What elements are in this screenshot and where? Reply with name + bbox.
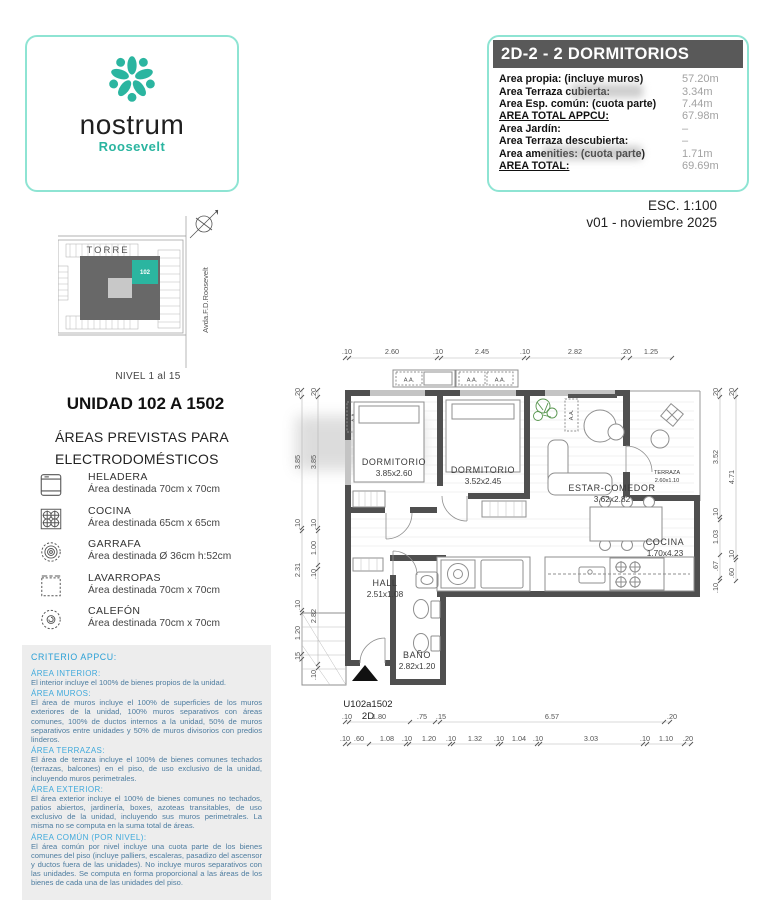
svg-text:3.62x2.82: 3.62x2.82 <box>594 494 631 504</box>
row-value: – <box>682 135 742 147</box>
logo-wordmark: nostrum <box>27 112 237 138</box>
area-summary-box: 2D-2 - 2 DORMITORIOS Area propia: (inclu… <box>487 35 749 192</box>
svg-text:TERRAZA: TERRAZA <box>654 470 680 476</box>
row-value: 7.44m <box>682 98 742 110</box>
table-row: Area Jardín:– <box>499 123 742 135</box>
svg-text:1.32: 1.32 <box>468 734 482 743</box>
svg-text:DORMITORIO: DORMITORIO <box>451 465 515 475</box>
row-label: AREA TOTAL: <box>499 160 682 172</box>
svg-text:.20: .20 <box>683 734 693 743</box>
unit-title: UNIDAD 102 A 1502 <box>28 394 263 414</box>
svg-text:.10: .10 <box>433 347 443 356</box>
svg-text:.15: .15 <box>293 652 302 662</box>
svg-text:.20: .20 <box>711 388 720 398</box>
svg-text:.10: .10 <box>293 600 302 610</box>
unit-number-label: 102 <box>140 270 151 276</box>
svg-text:1.08: 1.08 <box>380 734 394 743</box>
plan-sheet: nostrum Roosevelt 2D-2 - 2 DORMITORIOS A… <box>0 0 766 900</box>
svg-text:DORMITORIO: DORMITORIO <box>362 457 426 467</box>
svg-text:.10: .10 <box>711 583 720 593</box>
row-value: 69.69m <box>682 160 742 172</box>
bathroom-fixtures <box>414 572 441 653</box>
row-label: AREA TOTAL APPCU: <box>499 110 682 122</box>
svg-text:3.03: 3.03 <box>584 734 598 743</box>
north-arrow-icon <box>190 210 218 238</box>
washer-icon <box>38 573 64 604</box>
svg-text:1.10: 1.10 <box>659 734 673 743</box>
svg-text:.20: .20 <box>727 388 736 398</box>
svg-text:2.60x1.10: 2.60x1.10 <box>655 478 680 484</box>
row-value: 1.71m <box>682 148 742 160</box>
svg-text:.75: .75 <box>417 712 427 721</box>
svg-text:.67: .67 <box>711 561 720 571</box>
site-key-plan: Avda.F.D.Roosevelt 102 TORRE <box>58 208 238 381</box>
svg-text:1.70x4.23: 1.70x4.23 <box>647 548 684 558</box>
svg-text:.20: .20 <box>667 712 677 721</box>
svg-text:3.85: 3.85 <box>293 455 302 469</box>
svg-text:.10: .10 <box>309 519 318 529</box>
svg-text:A.A.: A.A. <box>569 409 575 420</box>
tv <box>568 394 617 398</box>
row-value: 67.98m <box>682 110 742 122</box>
svg-text:.10: .10 <box>533 734 543 743</box>
svg-text:A.A.: A.A. <box>495 378 506 384</box>
bed <box>446 400 520 472</box>
row-value: 57.20m <box>682 73 742 85</box>
svg-text:.10: .10 <box>309 670 318 680</box>
svg-text:A.A.: A.A. <box>404 378 415 384</box>
row-value: 3.34m <box>682 86 742 98</box>
svg-text:A.A.: A.A. <box>467 378 478 384</box>
svg-text:.10: .10 <box>640 734 650 743</box>
svg-text:1.20: 1.20 <box>293 626 302 640</box>
stove-icon <box>38 506 64 537</box>
svg-text:HALL: HALL <box>373 578 398 588</box>
redaction-blur <box>543 146 642 160</box>
svg-text:1.03: 1.03 <box>711 530 720 544</box>
svg-text:3.52: 3.52 <box>711 450 720 464</box>
nostrum-logo-icon <box>27 49 237 112</box>
appliance-legend: HELADERA Área destinada 70cm x 70cm COCI… <box>38 471 268 639</box>
water-heater-icon <box>38 606 64 637</box>
scale-label: ESC. 1:100 <box>586 197 717 214</box>
svg-text:2.51x1.08: 2.51x1.08 <box>367 589 404 599</box>
svg-text:2.82: 2.82 <box>568 347 582 356</box>
unit-type-title: 2D-2 - 2 DORMITORIOS <box>493 40 743 68</box>
svg-text:.20: .20 <box>621 347 631 356</box>
svg-text:.10: .10 <box>340 734 350 743</box>
redaction-blur <box>571 84 643 98</box>
list-item: GARRAFA Área destinada Ø 36cm h:52cm <box>38 538 268 572</box>
svg-text:.60: .60 <box>354 734 364 743</box>
svg-text:.60: .60 <box>727 568 736 578</box>
coffee-table <box>584 410 624 442</box>
floor-plan-drawing: A.A. A.A. A.A. A.A. A.A. <box>290 345 766 770</box>
closet <box>482 501 526 517</box>
svg-text:.10: .10 <box>711 508 720 518</box>
svg-text:.10: .10 <box>727 550 736 560</box>
svg-text:1.00: 1.00 <box>309 541 318 555</box>
svg-text:.10: .10 <box>520 347 530 356</box>
entry-arrow <box>352 665 378 681</box>
svg-text:COCINA: COCINA <box>646 537 685 547</box>
svg-text:2.82x1.20: 2.82x1.20 <box>399 661 436 671</box>
svg-text:1.20: 1.20 <box>422 734 436 743</box>
svg-text:2.82: 2.82 <box>309 609 318 623</box>
level-range-label: NIVEL 1 al 15 <box>58 371 238 382</box>
svg-text:6.57: 6.57 <box>545 712 559 721</box>
list-item: COCINA Área destinada 65cm x 65cm <box>38 505 268 539</box>
table-row: AREA TOTAL APPCU:67.98m <box>499 110 742 122</box>
svg-text:3.85: 3.85 <box>309 455 318 469</box>
svg-text:U102a1502: U102a1502 <box>343 699 392 710</box>
appcu-criteria-panel: CRITERIO APPCU: ÁREA INTERIOR: El interi… <box>22 645 271 900</box>
svg-text:.10: .10 <box>446 734 456 743</box>
svg-text:1.04: 1.04 <box>512 734 526 743</box>
svg-text:.20: .20 <box>309 388 318 398</box>
street-label: Avda.F.D.Roosevelt <box>201 266 210 333</box>
svg-text:.15: .15 <box>436 712 446 721</box>
svg-text:2.45: 2.45 <box>475 347 489 356</box>
terrace-furniture <box>651 404 683 448</box>
kitchen-counter <box>437 557 694 591</box>
svg-text:2.60: 2.60 <box>385 347 399 356</box>
svg-text:1.25: 1.25 <box>644 347 658 356</box>
drawing-meta: ESC. 1:100 v01 - noviembre 2025 <box>586 197 717 231</box>
list-item: HELADERA Área destinada 70cm x 70cm <box>38 471 268 505</box>
svg-text:2.31: 2.31 <box>293 563 302 577</box>
svg-text:.10: .10 <box>402 734 412 743</box>
svg-text:ESTAR-COMEDOR: ESTAR-COMEDOR <box>568 483 655 493</box>
criteria-title: CRITERIO APPCU: <box>31 652 262 662</box>
tower-label: TORRE <box>86 245 129 256</box>
hall-shelf <box>353 558 383 571</box>
svg-text:3.85x2.60: 3.85x2.60 <box>376 468 413 478</box>
fridge-icon <box>38 472 64 503</box>
table-row: Area Esp. común: (cuota parte)7.44m <box>499 98 742 110</box>
gas-cylinder-icon <box>38 539 64 570</box>
svg-text:4.71: 4.71 <box>727 470 736 484</box>
table-row: AREA TOTAL:69.69m <box>499 160 742 172</box>
list-item: LAVARROPAS Área destinada 70cm x 70cm <box>38 572 268 606</box>
logo-project-name: Roosevelt <box>27 139 237 154</box>
svg-text:.10: .10 <box>309 569 318 579</box>
wardrobe <box>353 491 385 507</box>
list-item: CALEFÓN Área destinada 70cm x 70cm <box>38 605 268 639</box>
svg-text:1.80: 1.80 <box>372 712 386 721</box>
svg-text:.10: .10 <box>342 712 352 721</box>
svg-text:.10: .10 <box>342 347 352 356</box>
row-value: – <box>682 123 742 135</box>
svg-text:3.52x2.45: 3.52x2.45 <box>465 476 502 486</box>
appliances-heading: ÁREAS PREVISTAS PARA ELECTRODOMÉSTICOS <box>55 426 229 470</box>
version-label: v01 - noviembre 2025 <box>586 214 717 231</box>
svg-text:.10: .10 <box>494 734 504 743</box>
svg-text:.20: .20 <box>293 388 302 398</box>
row-label: Area Jardín: <box>499 123 682 135</box>
logo-box: nostrum Roosevelt <box>25 35 239 192</box>
svg-text:BAÑO: BAÑO <box>403 650 431 660</box>
svg-text:.10: .10 <box>293 519 302 529</box>
row-label: Area Esp. común: (cuota parte) <box>499 98 682 110</box>
